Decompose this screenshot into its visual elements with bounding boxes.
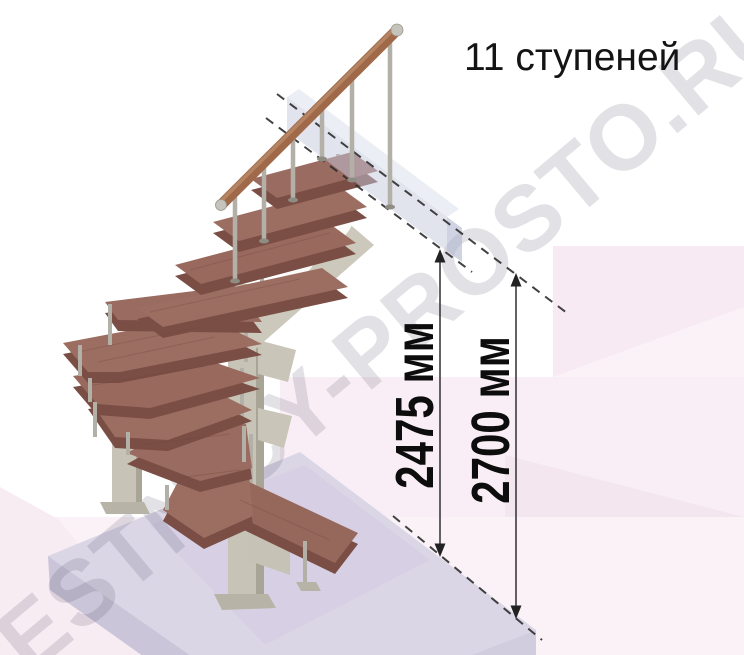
arrow-down-icon (435, 544, 446, 558)
baluster-base (385, 205, 395, 210)
scene-layer: 2475 мм 2700 мм (0, 0, 744, 655)
floor-post-foot-plate (296, 582, 321, 591)
arrow-up-icon (511, 273, 522, 287)
left-column-base-plate (100, 502, 150, 514)
dimension-2475: 2475 мм (385, 249, 445, 557)
baluster-base (288, 198, 298, 203)
steps-count-title: 11 ступеней (464, 36, 680, 80)
baluster-base (230, 279, 240, 284)
handrail-end-cap (216, 200, 227, 211)
dimension-label-2700: 2700 мм (461, 336, 521, 504)
center-column-base-plate (214, 594, 276, 610)
staircase-dimension-diagram: LESTNICY-PROSTO.RU (0, 0, 744, 655)
baluster-base (317, 157, 327, 162)
arrow-down-icon (511, 606, 522, 620)
baluster-base (347, 178, 357, 183)
dimension-label-2475: 2475 мм (385, 321, 445, 489)
dimension-2700: 2700 мм (461, 273, 521, 619)
ground-floor-level-dashed-line (393, 516, 542, 640)
baluster-base (259, 239, 269, 244)
handrail-top-cap (391, 24, 403, 36)
arrow-up-icon (435, 249, 446, 263)
